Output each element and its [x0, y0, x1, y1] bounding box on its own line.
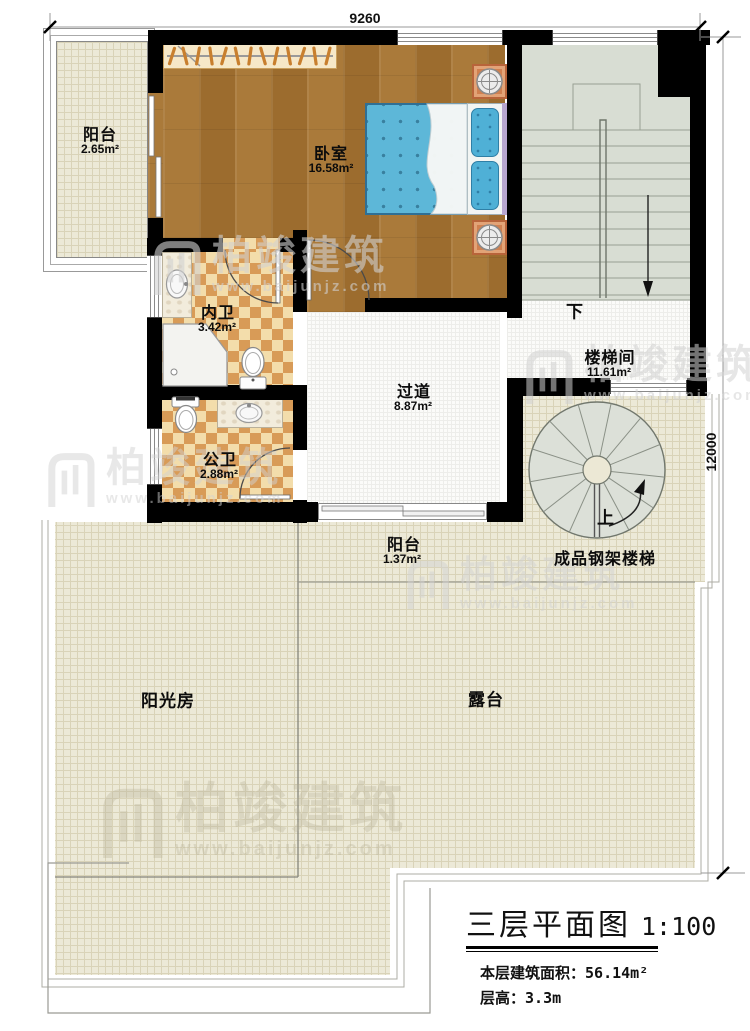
bed-mattress — [365, 103, 470, 215]
plan-scale: 1:100 — [641, 912, 716, 941]
room-area-stair-hall: 11.61m² — [587, 365, 631, 379]
floor-area-value: 56.14m² — [585, 964, 648, 982]
room-area-balcony-top: 2.65m² — [81, 142, 119, 156]
wall-bedroom-bottom — [365, 298, 510, 312]
wall-corridor-bottom-1 — [147, 502, 318, 522]
wall-stairhall-bottom-2 — [687, 378, 707, 396]
room-label-sunroom: 阳光房 — [141, 687, 195, 712]
stairwell-window — [552, 30, 658, 45]
public-bath-window — [147, 428, 162, 485]
corridor-sliding-door — [318, 503, 487, 520]
room-label-terrace: 露台 — [468, 686, 504, 711]
nightstand — [472, 64, 507, 99]
wall-ensuite-top-2 — [280, 238, 293, 252]
wall-public-right-1 — [293, 385, 307, 450]
wall-stairhall-bottom-1 — [507, 378, 610, 396]
bed-pillow — [471, 108, 499, 157]
nightstand — [472, 220, 507, 255]
balcony-door-threshold — [148, 93, 163, 218]
floor-area-label: 本层建筑面积： — [480, 965, 585, 982]
wall-top-2 — [503, 30, 552, 45]
wall-top-1 — [148, 30, 397, 45]
spiral-stair-label: 成品钢架楼梯 — [554, 545, 656, 569]
wall-left-top — [148, 30, 163, 93]
room-area-corridor: 8.87m² — [394, 399, 432, 413]
stairhall-opening-window — [610, 380, 687, 394]
ensuite-door-patch — [223, 238, 280, 252]
bedroom-window — [397, 30, 503, 45]
wall-ensuite-right — [293, 230, 307, 312]
wall-bath-divider — [147, 385, 307, 400]
bed-pillow — [471, 161, 499, 210]
watermark-logo-icon — [42, 448, 98, 515]
dimension-right: 12000 — [703, 433, 719, 472]
room-area-bedroom: 16.58m² — [309, 161, 354, 175]
room-area-ensuite: 3.42m² — [198, 320, 236, 334]
wall-bedroom-stair-divider — [507, 45, 522, 318]
wall-stair-pier — [658, 45, 690, 97]
title-block: 三层平面图1:100 本层建筑面积：56.14m² 层高：3.3m — [466, 900, 716, 1008]
wall-spiral-left — [507, 396, 523, 522]
title-underline — [466, 946, 658, 952]
room-area-balcony-bottom: 1.37m² — [383, 552, 421, 566]
public-bath-counter — [217, 398, 283, 428]
dimension-top: 9260 — [349, 10, 380, 26]
floor-height-label: 层高： — [480, 990, 525, 1007]
plan-title: 三层平面图 — [466, 909, 631, 942]
stair-down-label: 下 — [566, 298, 584, 323]
floor-height-value: 3.3m — [525, 989, 561, 1007]
wardrobe — [163, 42, 337, 69]
ensuite-window — [147, 255, 162, 318]
wall-left-mid — [148, 218, 163, 240]
ensuite-counter — [162, 252, 192, 318]
stair-up-label: 上 — [597, 504, 615, 529]
wall-right-outer — [690, 30, 706, 392]
floor-plan-canvas: 柏竣建筑www.baijunjz.com 柏竣建筑www.baijunjz.co… — [0, 0, 750, 1031]
room-area-public-bath: 2.88m² — [200, 467, 238, 481]
